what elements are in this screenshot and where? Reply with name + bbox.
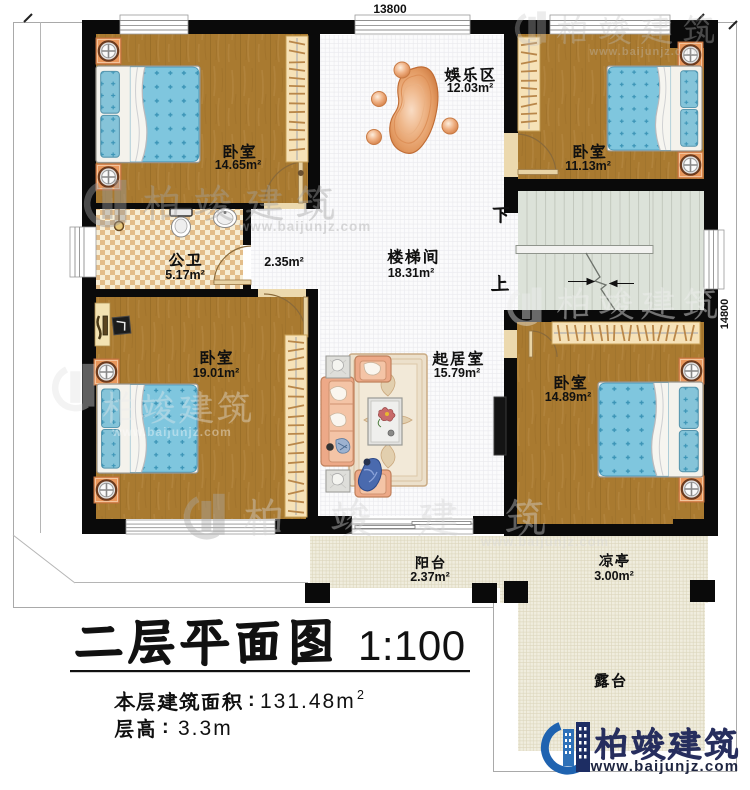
svg-text:www.baijunjz.com: www.baijunjz.com (590, 758, 740, 775)
svg-text:2.37m²: 2.37m² (410, 570, 450, 584)
svg-text:3.3m: 3.3m (178, 717, 233, 740)
svg-text:14.65m²: 14.65m² (215, 158, 262, 172)
svg-text:1:100: 1:100 (358, 622, 466, 669)
svg-text:13800: 13800 (373, 2, 407, 16)
svg-text:14800: 14800 (719, 299, 731, 330)
svg-text:2.35m²: 2.35m² (264, 255, 304, 269)
svg-text:131.48m: 131.48m (260, 690, 356, 713)
svg-text:www.baijunjz.com: www.baijunjz.com (238, 219, 372, 234)
svg-text::: : (248, 689, 255, 711)
svg-text:www.baijunjz.com: www.baijunjz.com (111, 425, 232, 439)
svg-text:www.baijunjz.com: www.baijunjz.com (480, 534, 609, 549)
svg-text:15.79m²: 15.79m² (434, 366, 481, 380)
svg-text:18.31m²: 18.31m² (388, 266, 435, 280)
svg-text:5.17m²: 5.17m² (165, 268, 205, 282)
svg-text:www.baijunjz.com: www.baijunjz.com (589, 46, 701, 58)
svg-text:3.00m²: 3.00m² (594, 569, 634, 583)
svg-text:2: 2 (357, 688, 364, 702)
svg-text:12.03m²: 12.03m² (447, 81, 494, 95)
svg-text:19.01m²: 19.01m² (193, 366, 240, 380)
svg-text::: : (162, 716, 169, 738)
svg-text:14.89m²: 14.89m² (545, 390, 592, 404)
svg-text:11.13m²: 11.13m² (565, 159, 611, 173)
